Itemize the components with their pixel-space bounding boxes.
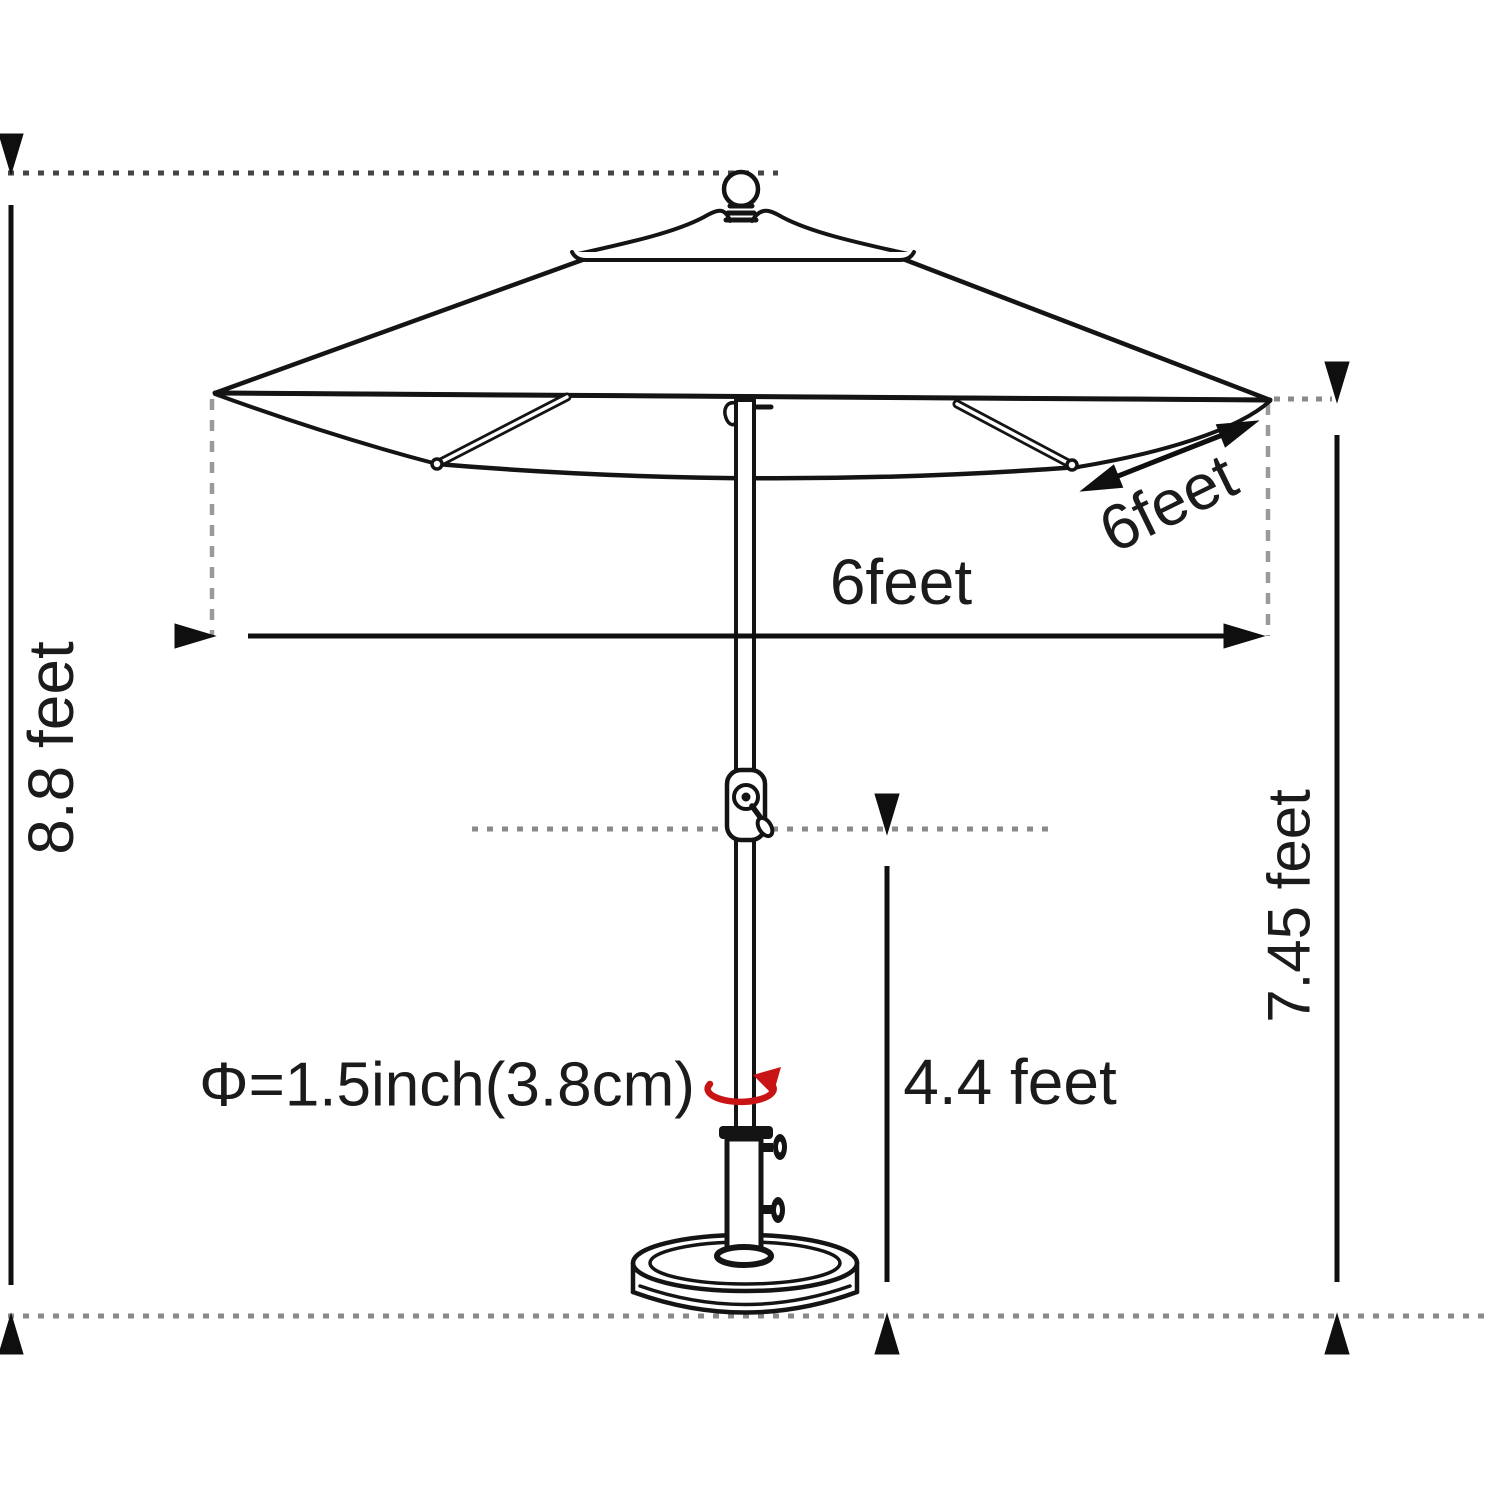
dim-width-arrow-left <box>175 624 215 648</box>
canopy-main <box>215 259 1270 400</box>
rib-right-tip-eyelet <box>1067 460 1077 470</box>
crank-height-label: 4.4 feet <box>903 1046 1117 1118</box>
canopy-under-sag-edge <box>437 464 1078 478</box>
umbrella-pole <box>736 400 754 1133</box>
dim-overall-height-arrow-up <box>0 134 23 174</box>
tube-collar <box>719 1126 773 1139</box>
cap-top-right-curve <box>752 211 908 254</box>
dim-clearance-arrow-up <box>1325 362 1349 402</box>
rib-left-core <box>441 397 567 462</box>
cap-band <box>572 252 914 260</box>
dim-clearance-arrow-down <box>1325 1314 1349 1354</box>
umbrella <box>215 172 1270 1313</box>
base-tube <box>727 1139 761 1257</box>
diagram-canvas: 8.8 feet 7.45 feet 6feet 6feet 4.4 feet … <box>0 0 1500 1500</box>
canopy-width-label: 6feet <box>830 546 973 618</box>
base-socket-rim <box>717 1247 771 1265</box>
pole-diameter-label: Φ=1.5inch(3.8cm) <box>199 1051 695 1120</box>
dim-crank-height-arrow-down <box>875 1314 899 1354</box>
dim-width-arrow-right <box>1224 624 1264 648</box>
thumb-screw-2-stem <box>759 1205 773 1214</box>
umbrella-dimension-diagram: 8.8 feet 7.45 feet 6feet 6feet 4.4 feet … <box>0 0 1500 1500</box>
rib-right-core <box>957 404 1068 463</box>
rib-left-tip-eyelet <box>432 459 442 469</box>
thumb-screw-1-slot <box>778 1142 782 1153</box>
dim-overall-height-arrow-down <box>0 1314 23 1354</box>
crank-pivot-dot <box>742 793 751 802</box>
thumb-screw-2-slot <box>776 1205 780 1216</box>
canopy-under-left-edge <box>215 394 437 464</box>
finial-ball <box>724 172 758 206</box>
thumb-screw-1-stem <box>759 1143 773 1152</box>
clearance-height-label: 7.45 feet <box>1256 789 1323 1023</box>
overall-height-label: 8.8 feet <box>15 641 87 855</box>
dim-depth-arrow-upper <box>1216 410 1262 447</box>
cap-top-left-curve <box>578 211 730 254</box>
dimension-labels: 8.8 feet 7.45 feet 6feet 6feet 4.4 feet … <box>15 439 1323 1119</box>
rotation-arrow-head <box>753 1067 781 1095</box>
